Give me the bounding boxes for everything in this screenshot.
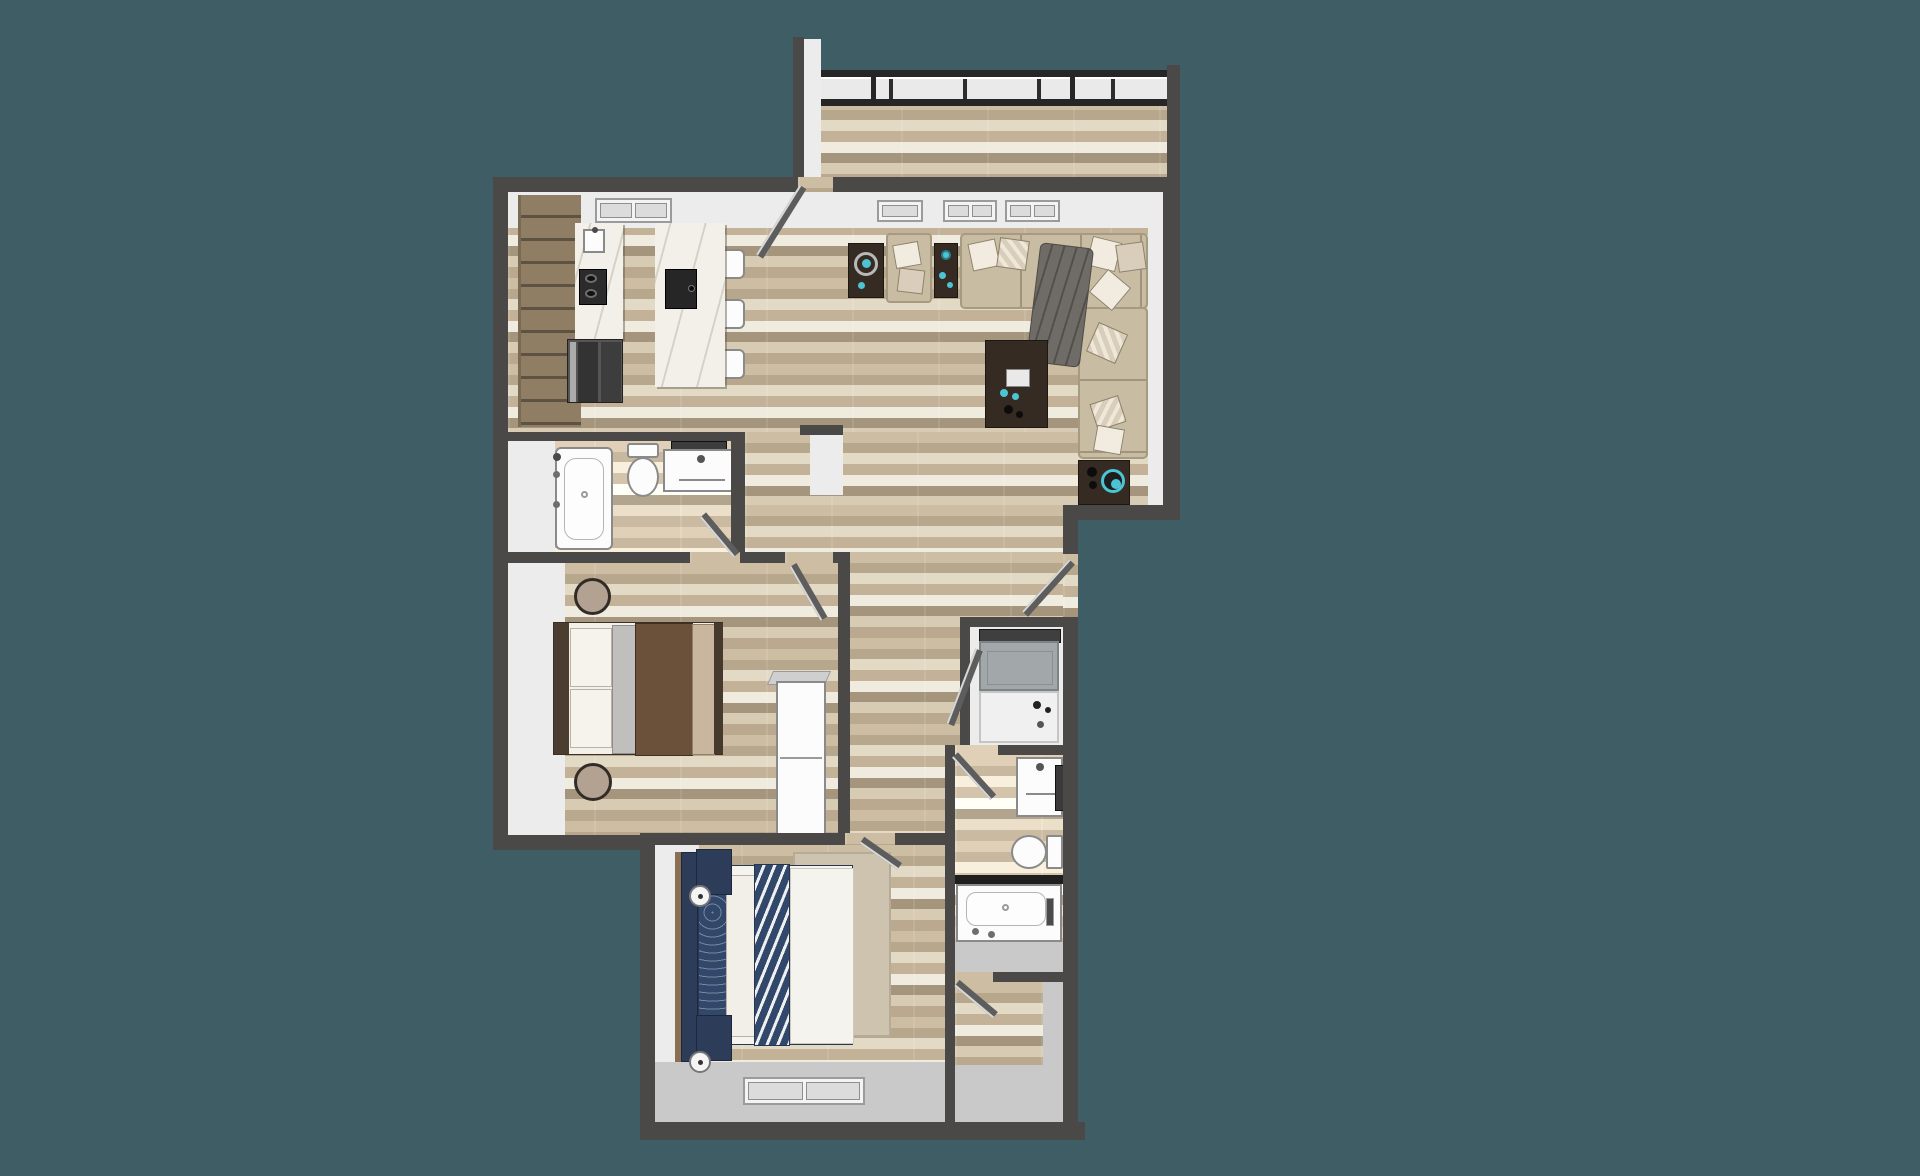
east-wall-face [1148,192,1163,505]
armchair [886,233,932,303]
bedroom1-door-threshold [785,552,833,563]
washer [979,641,1059,691]
tub2-faucet-icon [1046,898,1054,926]
washer-lid-line [987,651,1053,685]
teal-decor-icon [1000,389,1008,397]
kitchen-faucet [592,227,598,233]
balcony-west-wall [793,37,804,187]
dryer-knob-icon [1037,721,1044,728]
chaise-pillow [1093,425,1125,455]
closet-south-face [955,1065,1063,1122]
balcony-left-wall-face [804,39,821,187]
railing-top-bar [815,70,1180,77]
bedroom1-south-wall [493,835,655,850]
side-table-decor [934,243,958,298]
toilet-bowl [627,457,659,497]
teal-decor-icon [1012,393,1019,400]
armchair-pillow [897,268,926,295]
window-pane [1010,205,1031,217]
window-pane [882,205,918,217]
window-pane [972,205,993,217]
bathroom1-west-face [508,441,555,552]
dresser-divider [780,757,822,759]
balcony-floor [815,99,1169,187]
fridge-door-panel [601,342,621,402]
bathtub-basin [564,458,604,540]
window-pane [748,1082,803,1100]
south-wall [640,1122,1085,1140]
dryer-knob-icon [1033,701,1041,709]
bed2-chevron-blanket [754,864,790,1046]
living-window [1005,200,1060,222]
top-wall-right [833,177,1180,192]
bed1-brown-blanket [635,623,693,756]
bedroom1-north-wall-b [740,552,785,563]
east-wall-lower-a [1063,520,1078,554]
speaker-icon [1101,469,1125,493]
kitchen-island [655,223,725,387]
top-wall-left [493,177,798,192]
teal-decor-icon [941,250,951,260]
living-window [877,200,923,222]
floor-plan [493,37,1180,1140]
magazine-icon [1006,369,1030,387]
tub2-deck-edge [955,875,1063,884]
round-stool [574,763,612,801]
coffee-table [985,340,1048,428]
bed1-footboard [714,623,723,754]
window-pane [600,203,632,218]
fridge-door-panel [578,342,598,402]
bathtub [555,447,613,550]
teal-decor-icon [939,272,946,279]
kitchen-sink [583,229,605,253]
lamp-finial-icon [698,894,703,899]
teal-decor-icon [947,282,953,288]
armchair-pillow [892,241,922,269]
vanity-sink [663,449,740,492]
tub2-drain-icon [1002,904,1009,911]
bedroom2-north-wall-a [655,833,845,845]
island-sink [665,269,697,309]
east-wall-upper [1163,177,1180,509]
round-lamp [689,885,711,907]
bathroom2-west-wall [945,745,955,1122]
teal-vase-icon [862,259,871,268]
bedroom1-east-wall [838,552,850,835]
bed-1 [553,622,723,755]
cooktop [579,269,607,305]
speaker-knob-icon [1087,467,1097,477]
laundry-north-wall [960,617,1078,627]
vanity2-sink-line [1026,793,1056,795]
round-stool [574,578,611,615]
bathroom2-door-threshold [955,745,998,755]
bed1-pillow [570,628,612,687]
fridge-stainless-edge [570,342,576,402]
tub2-handle-icon [972,928,979,935]
tub-faucet-icon [553,453,561,461]
toilet-2-tank [1046,835,1063,869]
window-pane [635,203,667,218]
toilet-2-bowl [1011,835,1047,869]
tub2-handle-icon [988,931,995,938]
sofa-pillow-patterned [996,237,1030,271]
side-table-ring-tray [848,243,884,298]
toilet-tank [627,443,659,458]
round-lamp [689,1051,711,1073]
bedroom2-north-wall-b [895,833,945,845]
tub-handle-icon [553,471,560,478]
bedroom2-south-window [743,1077,865,1105]
bed1-gray-blanket-band [612,625,636,754]
vanity-faucet-icon [697,455,705,463]
screenshot-canvas: { "page": { "description": "3D top-down … [0,0,1920,1176]
bathtub-2 [956,884,1062,942]
bedroom1-north-wall-a [508,552,690,563]
teal-dot-icon [858,282,865,289]
living-hall-stub-wall [800,425,843,435]
window-pane [948,205,969,217]
white-dresser [776,681,826,835]
railing-post-left [871,73,876,103]
speaker-center-icon [1111,479,1121,489]
living-window [943,200,997,222]
kitchen-window [595,198,672,223]
vanity-sink-line [679,479,725,481]
railing-post-right [1070,73,1075,103]
living-hall-stub-face [810,435,843,495]
tub-drain-icon [581,491,588,498]
burner-icon [585,274,597,283]
refrigerator [567,339,623,403]
west-wall [493,177,508,850]
vanity2-faucet-icon [1036,763,1044,771]
bed2-white-duvet [790,868,854,1044]
window-pane [1034,205,1055,217]
window-pane [806,1082,861,1100]
lamp-finial-icon [698,1060,703,1065]
bed1-tan-band [692,624,715,755]
bathroom2-south-tile [955,942,1063,972]
dryer [979,691,1059,743]
east-wall-lower-b [1063,617,1078,1130]
speaker-side-table [1078,460,1130,505]
speaker-knob-icon [1089,481,1097,489]
bedroom2-west-wall [640,833,655,1140]
bed1-headboard [554,623,569,754]
burner-icon [585,289,597,298]
dryer-knob-icon [1045,707,1051,713]
balcony-east-wall [1167,65,1180,187]
step-wall [1063,505,1180,520]
remote-icon [1016,411,1023,418]
bathroom1-north-wall [508,432,745,441]
island-faucet [688,285,695,292]
sofa-pillow [1115,241,1147,273]
bed1-pillow [570,689,612,748]
hallway-floor [745,505,1063,552]
railing-bottom-bar [815,99,1180,106]
bathroom1-east-wall [731,432,745,552]
remote-icon [1004,405,1013,414]
tub-handle-icon [553,501,560,508]
